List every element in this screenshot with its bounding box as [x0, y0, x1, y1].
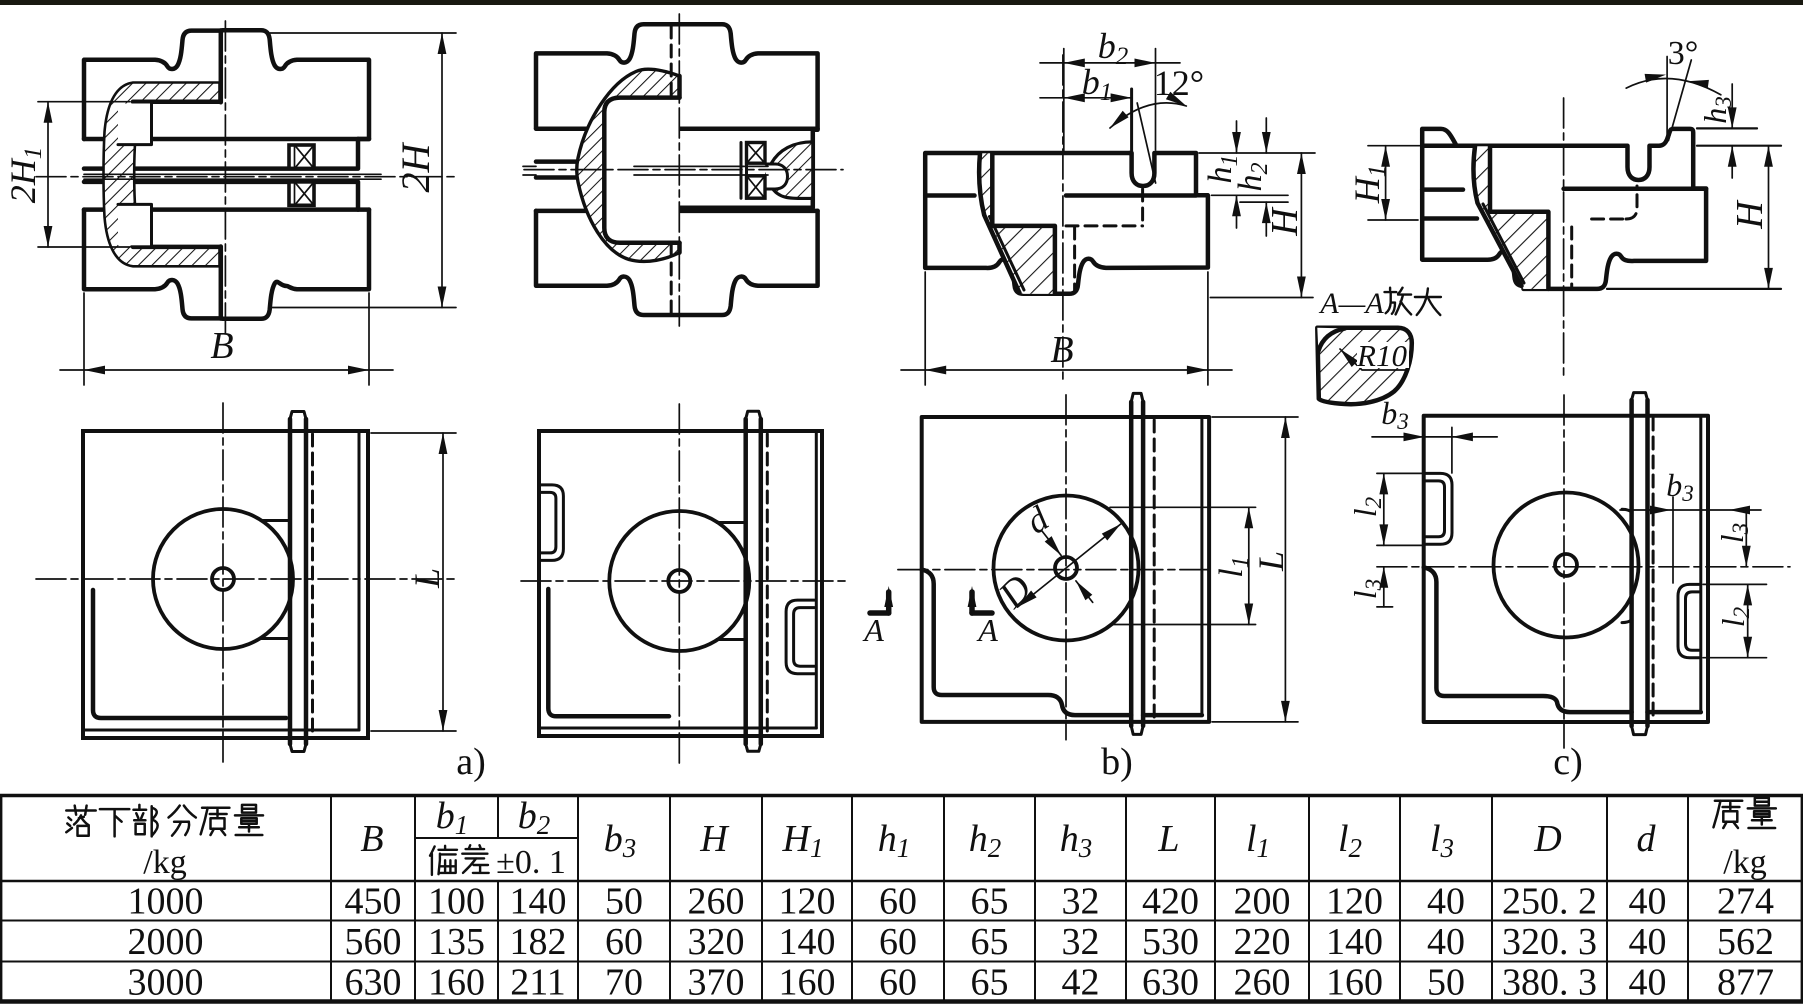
svg-text:562: 562 — [1717, 921, 1774, 963]
svg-text:40: 40 — [1427, 921, 1465, 963]
svg-text:H: H — [699, 818, 730, 860]
svg-text:140: 140 — [1326, 921, 1383, 963]
svg-text:260: 260 — [1234, 962, 1291, 1004]
svg-text:560: 560 — [345, 921, 402, 963]
svg-text:L: L — [407, 568, 447, 589]
svg-text:250. 2: 250. 2 — [1502, 881, 1597, 923]
svg-text:3°: 3° — [1668, 35, 1699, 72]
svg-text:100: 100 — [428, 881, 485, 923]
svg-text:3000: 3000 — [128, 962, 204, 1004]
svg-text:42: 42 — [1062, 962, 1100, 1004]
svg-text:B: B — [210, 325, 233, 367]
svg-text:A—A: A—A — [1318, 287, 1384, 320]
svg-text:630: 630 — [1142, 962, 1199, 1004]
svg-text:65: 65 — [971, 881, 1009, 923]
svg-text:320: 320 — [688, 921, 745, 963]
svg-text:182: 182 — [510, 921, 567, 963]
svg-text:A: A — [976, 612, 998, 648]
svg-text:B: B — [1050, 329, 1073, 371]
svg-text:b): b) — [1101, 741, 1133, 783]
svg-text:220: 220 — [1234, 921, 1291, 963]
svg-text:380. 3: 380. 3 — [1502, 962, 1597, 1004]
svg-text:120: 120 — [779, 881, 836, 923]
svg-text:60: 60 — [879, 881, 917, 923]
svg-text:A: A — [862, 612, 884, 648]
svg-text:160: 160 — [779, 962, 836, 1004]
svg-text:32: 32 — [1062, 881, 1100, 923]
svg-text:60: 60 — [879, 921, 917, 963]
svg-text:±0. 1: ±0. 1 — [496, 844, 566, 881]
svg-text:40: 40 — [1629, 881, 1667, 923]
svg-text:140: 140 — [779, 921, 836, 963]
svg-text:450: 450 — [345, 881, 402, 923]
svg-text:211: 211 — [510, 962, 566, 1004]
svg-text:370: 370 — [688, 962, 745, 1004]
svg-text:200: 200 — [1234, 881, 1291, 923]
svg-text:65: 65 — [971, 921, 1009, 963]
svg-text:R10: R10 — [1356, 338, 1407, 373]
svg-text:50: 50 — [605, 881, 643, 923]
svg-text:D: D — [1533, 818, 1561, 860]
svg-text:32: 32 — [1062, 921, 1100, 963]
svg-text:140: 140 — [510, 881, 567, 923]
svg-text:40: 40 — [1427, 881, 1465, 923]
svg-text:L: L — [1251, 551, 1291, 572]
svg-text:1000: 1000 — [128, 881, 204, 923]
svg-text:2H: 2H — [393, 141, 438, 192]
svg-text:40: 40 — [1629, 962, 1667, 1004]
svg-text:530: 530 — [1142, 921, 1199, 963]
svg-text:274: 274 — [1717, 881, 1774, 923]
svg-text:630: 630 — [345, 962, 402, 1004]
svg-text:260: 260 — [688, 881, 745, 923]
svg-text:c): c) — [1553, 741, 1583, 783]
svg-text:12°: 12° — [1154, 63, 1204, 103]
svg-text:60: 60 — [605, 921, 643, 963]
svg-text:40: 40 — [1629, 921, 1667, 963]
svg-text:120: 120 — [1326, 881, 1383, 923]
svg-text:320. 3: 320. 3 — [1502, 921, 1597, 963]
svg-text:877: 877 — [1717, 962, 1774, 1004]
svg-text:H: H — [1729, 199, 1771, 230]
svg-text:50: 50 — [1427, 962, 1465, 1004]
svg-text:160: 160 — [428, 962, 485, 1004]
svg-text:70: 70 — [605, 962, 643, 1004]
svg-text:B: B — [360, 818, 383, 860]
svg-text:160: 160 — [1326, 962, 1383, 1004]
svg-text:L: L — [1157, 818, 1179, 860]
svg-text:65: 65 — [971, 962, 1009, 1004]
svg-text:420: 420 — [1142, 881, 1199, 923]
svg-text:d: d — [1637, 818, 1657, 860]
svg-text:/kg: /kg — [143, 844, 186, 881]
svg-text:60: 60 — [879, 962, 917, 1004]
svg-text:/kg: /kg — [1723, 844, 1766, 881]
svg-text:a): a) — [456, 741, 486, 783]
svg-text:H: H — [1264, 206, 1306, 237]
svg-text:135: 135 — [428, 921, 485, 963]
svg-text:2000: 2000 — [128, 921, 204, 963]
